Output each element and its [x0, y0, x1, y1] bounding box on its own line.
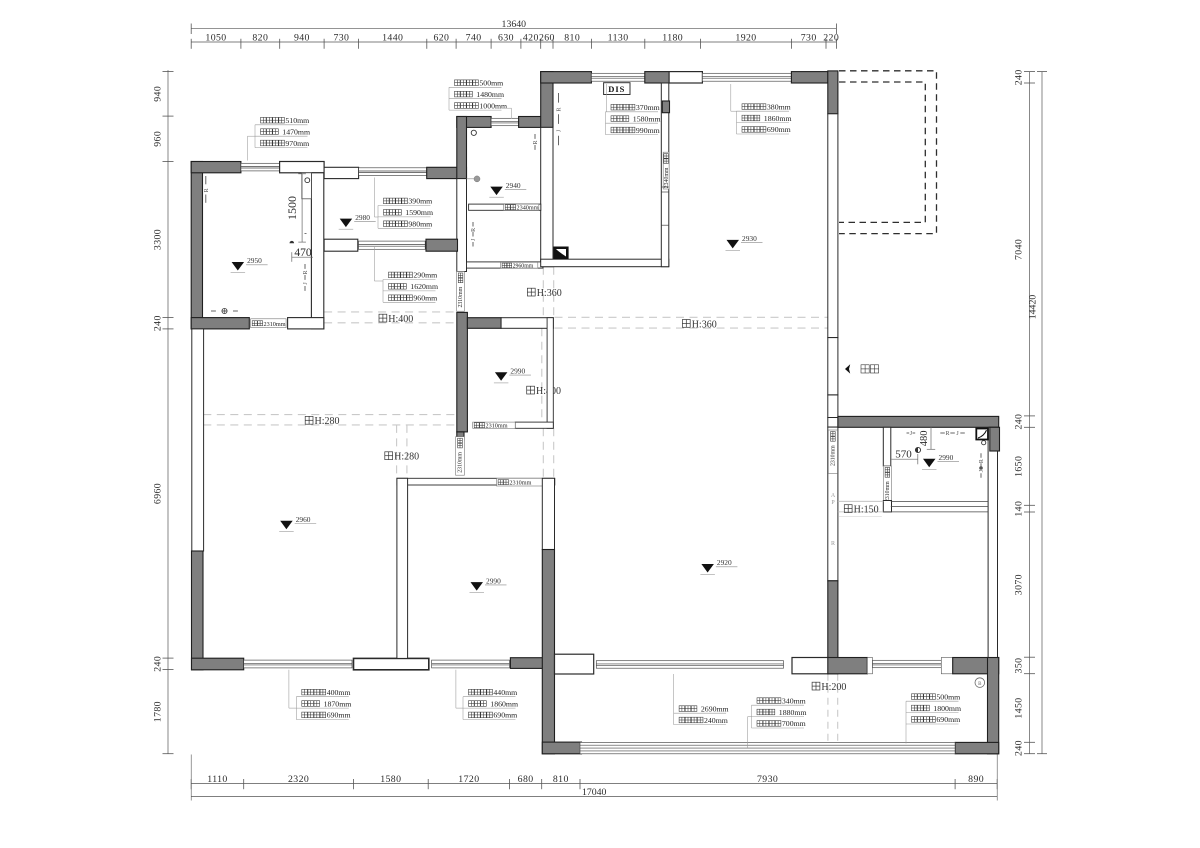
svg-text:220: 220	[823, 33, 839, 44]
svg-text:1880mm: 1880mm	[779, 708, 807, 717]
svg-text:1870mm: 1870mm	[324, 699, 352, 708]
svg-text:340mm: 340mm	[782, 696, 806, 705]
svg-text:990mm: 990mm	[636, 126, 660, 135]
svg-text:510mm: 510mm	[285, 116, 309, 125]
svg-text:380mm: 380mm	[767, 102, 791, 111]
svg-text:2990: 2990	[486, 576, 501, 585]
svg-text:500mm: 500mm	[936, 692, 960, 701]
svg-text:240mm: 240mm	[704, 716, 728, 725]
svg-text:1920: 1920	[735, 33, 756, 44]
svg-text:620: 620	[433, 33, 449, 44]
svg-text:2310mm: 2310mm	[831, 445, 837, 466]
svg-text:H:200: H:200	[821, 682, 846, 693]
svg-text:740: 740	[466, 33, 482, 44]
svg-text:2990: 2990	[510, 367, 525, 376]
svg-text:500mm: 500mm	[479, 79, 503, 88]
svg-text:140: 140	[1014, 501, 1025, 517]
svg-text:1480mm: 1480mm	[476, 90, 504, 99]
svg-text:A: A	[831, 493, 836, 499]
svg-text:2930: 2930	[742, 234, 757, 243]
svg-text:3070: 3070	[1014, 574, 1025, 595]
svg-text:690mm: 690mm	[767, 125, 791, 134]
svg-text:1860mm: 1860mm	[490, 699, 518, 708]
svg-text:14420: 14420	[1028, 295, 1039, 320]
svg-text:240: 240	[153, 656, 164, 672]
svg-text:470: 470	[294, 247, 312, 259]
svg-text:1720: 1720	[458, 774, 479, 785]
svg-text:1620mm: 1620mm	[410, 282, 438, 291]
svg-text:2980: 2980	[355, 213, 370, 222]
svg-text:1110: 1110	[207, 774, 227, 785]
svg-text:420: 420	[523, 33, 539, 44]
svg-text:630: 630	[498, 33, 514, 44]
svg-text:2310mm: 2310mm	[509, 480, 531, 487]
svg-text:R: R	[303, 270, 309, 274]
svg-text:730: 730	[801, 33, 817, 44]
svg-text:R: R	[204, 188, 210, 192]
svg-text:6960: 6960	[153, 483, 164, 504]
svg-text:240: 240	[1014, 414, 1025, 430]
svg-text:2950: 2950	[247, 256, 262, 265]
svg-text:1050: 1050	[205, 33, 226, 44]
svg-text:290mm: 290mm	[413, 271, 437, 280]
svg-text:1650: 1650	[1014, 456, 1025, 477]
svg-text:1590mm: 1590mm	[405, 208, 433, 217]
svg-text:1470mm: 1470mm	[282, 127, 310, 136]
svg-text:2340mm: 2340mm	[517, 205, 539, 212]
svg-text:2340mm: 2340mm	[664, 167, 670, 188]
svg-text:390mm: 390mm	[408, 197, 432, 206]
svg-text:960: 960	[153, 131, 164, 147]
svg-text:940: 940	[153, 86, 164, 102]
svg-text:1580mm: 1580mm	[633, 114, 661, 123]
svg-text:810: 810	[553, 774, 569, 785]
svg-text:240: 240	[153, 315, 164, 331]
svg-text:DIS: DIS	[608, 84, 625, 94]
svg-text:3300: 3300	[153, 229, 164, 250]
svg-text:7930: 7930	[757, 774, 778, 785]
svg-text:700mm: 700mm	[782, 719, 806, 728]
svg-text:13640: 13640	[502, 19, 527, 30]
svg-text:980mm: 980mm	[408, 220, 432, 229]
svg-text:H:360: H:360	[692, 319, 717, 330]
svg-text:2310mm: 2310mm	[264, 321, 286, 328]
svg-text:2310mm: 2310mm	[458, 286, 464, 307]
svg-text:R: R	[831, 541, 835, 547]
svg-text:2960: 2960	[296, 515, 311, 524]
svg-text:680: 680	[518, 774, 534, 785]
svg-text:730: 730	[333, 33, 349, 44]
svg-text:810: 810	[564, 33, 580, 44]
svg-text:7040: 7040	[1014, 239, 1025, 260]
svg-text:940: 940	[294, 33, 310, 44]
svg-text:2310mm: 2310mm	[885, 481, 891, 502]
svg-text:480: 480	[919, 430, 930, 446]
svg-text:260: 260	[539, 33, 555, 44]
svg-text:960mm: 960mm	[413, 294, 437, 303]
svg-text:690mm: 690mm	[493, 711, 517, 720]
svg-text:H:150: H:150	[854, 505, 879, 516]
svg-text:1580: 1580	[380, 774, 401, 785]
svg-text:1800mm: 1800mm	[933, 704, 961, 713]
svg-text:R: R	[533, 140, 539, 144]
svg-text:2690mm: 2690mm	[701, 704, 729, 713]
svg-text:2960mm: 2960mm	[513, 264, 534, 270]
svg-text:350: 350	[1014, 658, 1025, 674]
svg-text:1130: 1130	[608, 33, 629, 44]
svg-text:2310mm: 2310mm	[458, 452, 464, 473]
svg-text:400mm: 400mm	[327, 688, 351, 697]
svg-text:H:280: H:280	[315, 416, 340, 427]
svg-text:570: 570	[895, 449, 912, 461]
svg-text:1860mm: 1860mm	[764, 114, 792, 123]
svg-text:1500: 1500	[285, 196, 299, 220]
svg-text:R: R	[945, 431, 949, 437]
svg-text:2310mm: 2310mm	[486, 423, 508, 430]
svg-text:1180: 1180	[662, 33, 683, 44]
svg-text:2940: 2940	[506, 181, 521, 190]
svg-text:370mm: 370mm	[636, 103, 660, 112]
svg-text:1440: 1440	[382, 33, 403, 44]
svg-text:440mm: 440mm	[493, 688, 517, 697]
svg-text:1000mm: 1000mm	[479, 101, 507, 110]
svg-text:820: 820	[252, 33, 268, 44]
svg-text:890: 890	[968, 774, 984, 785]
svg-text:2920: 2920	[717, 558, 732, 567]
svg-text:2990: 2990	[939, 453, 954, 462]
svg-text:970mm: 970mm	[285, 139, 309, 148]
svg-text:2320: 2320	[288, 774, 309, 785]
svg-text:H:400: H:400	[388, 314, 413, 325]
svg-text:1450: 1450	[1014, 697, 1025, 718]
svg-text:H:360: H:360	[537, 288, 562, 299]
svg-text:R: R	[979, 459, 985, 463]
svg-text:R: R	[471, 228, 477, 232]
svg-text:240: 240	[1014, 740, 1025, 756]
svg-text:H:280: H:280	[394, 452, 419, 463]
svg-text:17040: 17040	[582, 787, 607, 798]
svg-text:690mm: 690mm	[936, 715, 960, 724]
svg-text:240: 240	[1014, 69, 1025, 85]
svg-text:690mm: 690mm	[327, 711, 351, 720]
svg-text:1780: 1780	[153, 701, 164, 722]
svg-text:R: R	[557, 107, 563, 111]
